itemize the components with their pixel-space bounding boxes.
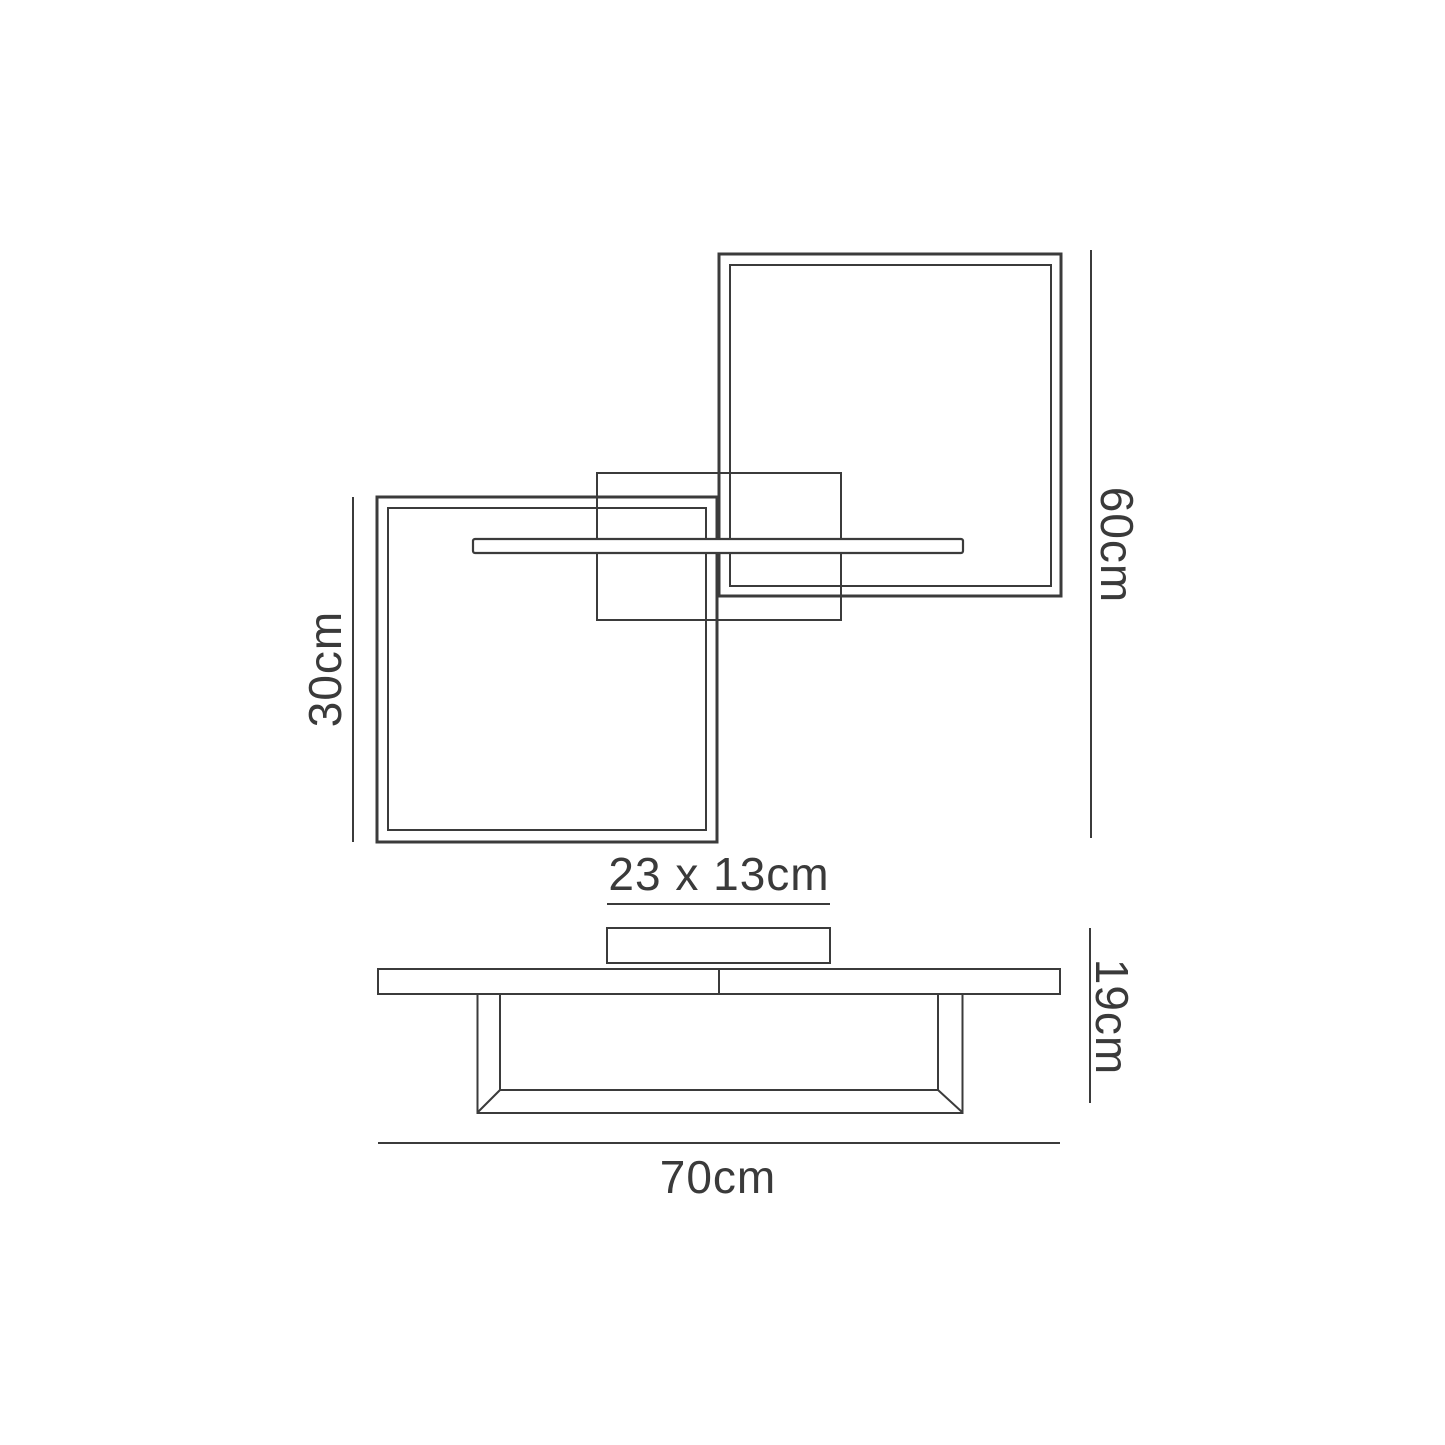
dimension-label-70cm: 70cm [660, 1154, 776, 1200]
top-view-drawing [377, 254, 1061, 842]
canopy-box [607, 928, 830, 963]
frame-profile-outer [478, 994, 963, 1113]
frame-profile-bevel-left [478, 1090, 500, 1112]
frame-profile-bevel-right [938, 1090, 962, 1112]
cross-bar [473, 539, 963, 553]
side-view-drawing [378, 928, 1060, 1113]
large-frame-inner [730, 265, 1051, 586]
dimension-diagram: 30cm 60cm 23 x 13cm 19cm 70cm [0, 0, 1445, 1445]
frame-profile-inner [500, 994, 938, 1090]
dimension-lines [353, 250, 1091, 1143]
drawing-canvas [0, 0, 1445, 1445]
dimension-label-23x13cm: 23 x 13cm [608, 851, 829, 897]
dimension-label-60cm: 60cm [1094, 487, 1140, 603]
small-frame-inner [388, 508, 706, 830]
dimension-label-19cm: 19cm [1089, 959, 1135, 1075]
dimension-label-30cm: 30cm [302, 611, 348, 727]
